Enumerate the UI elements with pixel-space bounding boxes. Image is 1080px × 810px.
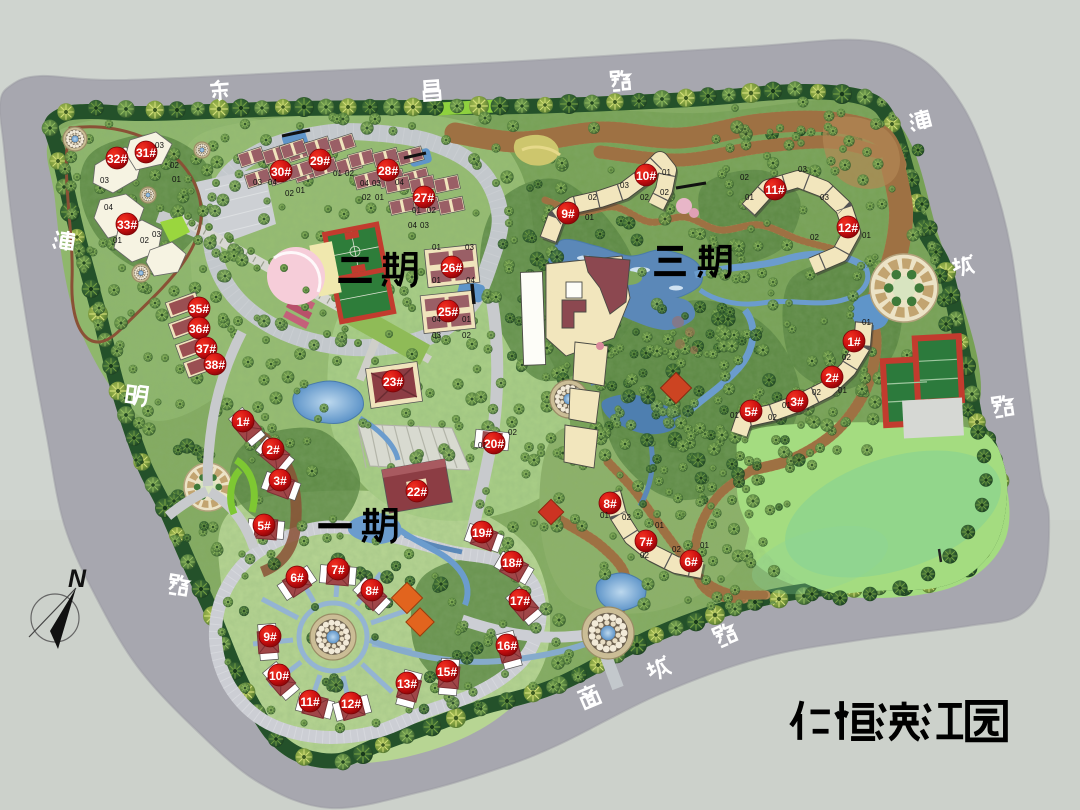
svg-text:04: 04 — [408, 221, 417, 230]
svg-text:33#: 33# — [117, 218, 137, 232]
svg-text:10#: 10# — [269, 669, 289, 683]
svg-text:1#: 1# — [236, 415, 250, 429]
svg-text:12#: 12# — [341, 697, 361, 711]
svg-text:8#: 8# — [365, 584, 379, 598]
svg-text:04: 04 — [104, 203, 113, 212]
svg-text:25#: 25# — [438, 305, 458, 319]
svg-text:7#: 7# — [639, 535, 653, 549]
svg-text:03: 03 — [420, 221, 429, 230]
svg-text:01: 01 — [745, 193, 754, 202]
svg-text:02: 02 — [140, 236, 149, 245]
svg-text:02: 02 — [285, 189, 294, 198]
svg-text:01: 01 — [432, 243, 441, 252]
svg-text:9#: 9# — [561, 207, 575, 221]
svg-text:2#: 2# — [825, 371, 839, 385]
svg-text:7#: 7# — [331, 563, 345, 577]
svg-text:30#: 30# — [271, 165, 291, 179]
svg-text:04: 04 — [395, 178, 404, 187]
svg-text:01: 01 — [862, 231, 871, 240]
svg-text:11#: 11# — [765, 183, 785, 197]
svg-text:19#: 19# — [472, 526, 492, 540]
svg-text:03: 03 — [432, 331, 441, 340]
svg-text:01: 01 — [585, 213, 594, 222]
svg-text:01: 01 — [662, 168, 671, 177]
svg-text:01: 01 — [700, 541, 709, 550]
svg-text:02: 02 — [640, 193, 649, 202]
svg-text:17#: 17# — [510, 594, 530, 608]
svg-text:03: 03 — [372, 179, 381, 188]
svg-text:01: 01 — [600, 511, 609, 520]
svg-text:02: 02 — [345, 169, 354, 178]
svg-text:13#: 13# — [397, 677, 417, 691]
svg-text:3#: 3# — [273, 474, 287, 488]
svg-text:01: 01 — [782, 401, 791, 410]
svg-text:20#: 20# — [484, 437, 504, 451]
svg-text:5#: 5# — [744, 405, 758, 419]
svg-text:01: 01 — [838, 386, 847, 395]
svg-text:26#: 26# — [442, 261, 462, 275]
svg-text:03: 03 — [155, 141, 164, 150]
svg-text:11#: 11# — [300, 695, 320, 709]
svg-text:01: 01 — [113, 236, 122, 245]
svg-text:5#: 5# — [257, 519, 271, 533]
svg-text:03: 03 — [100, 176, 109, 185]
svg-text:01: 01 — [172, 175, 181, 184]
svg-text:02: 02 — [768, 413, 777, 422]
svg-text:32#: 32# — [107, 152, 127, 166]
svg-text:01: 01 — [333, 169, 342, 178]
svg-text:02: 02 — [170, 161, 179, 170]
svg-text:8#: 8# — [603, 497, 617, 511]
svg-text:03: 03 — [152, 230, 161, 239]
svg-text:02: 02 — [362, 193, 371, 202]
svg-text:6#: 6# — [290, 571, 304, 585]
svg-text:02: 02 — [462, 331, 471, 340]
svg-text:15#: 15# — [437, 665, 457, 679]
svg-text:16#: 16# — [497, 639, 517, 653]
svg-text:01: 01 — [375, 193, 384, 202]
svg-text:01: 01 — [462, 315, 471, 324]
svg-text:03: 03 — [253, 178, 262, 187]
svg-text:18#: 18# — [502, 556, 522, 570]
svg-text:01: 01 — [730, 411, 739, 420]
svg-text:N: N — [68, 565, 87, 593]
svg-text:02: 02 — [810, 233, 819, 242]
svg-text:04: 04 — [466, 276, 475, 285]
svg-text:01: 01 — [862, 318, 871, 327]
svg-text:02: 02 — [672, 545, 681, 554]
svg-text:2#: 2# — [266, 443, 280, 457]
svg-text:01: 01 — [478, 441, 487, 450]
svg-text:9#: 9# — [263, 630, 277, 644]
svg-text:03: 03 — [798, 165, 807, 174]
svg-text:03: 03 — [820, 193, 829, 202]
svg-text:35#: 35# — [189, 302, 209, 316]
svg-text:31#: 31# — [136, 146, 156, 160]
svg-text:12#: 12# — [838, 221, 858, 235]
svg-text:28#: 28# — [378, 164, 398, 178]
svg-text:02: 02 — [427, 206, 436, 215]
svg-text:03: 03 — [465, 243, 474, 252]
svg-text:02: 02 — [508, 428, 517, 437]
svg-text:10#: 10# — [636, 169, 656, 183]
svg-text:02: 02 — [588, 193, 597, 202]
svg-text:36#: 36# — [189, 322, 209, 336]
svg-text:04: 04 — [432, 315, 441, 324]
svg-text:01: 01 — [412, 206, 421, 215]
svg-text:22#: 22# — [407, 485, 427, 499]
svg-text:02: 02 — [812, 388, 821, 397]
svg-text:03: 03 — [620, 181, 629, 190]
svg-text:02: 02 — [622, 513, 631, 522]
svg-text:01: 01 — [432, 276, 441, 285]
svg-text:38#: 38# — [205, 358, 225, 372]
svg-text:04: 04 — [268, 178, 277, 187]
svg-text:23#: 23# — [383, 375, 403, 389]
svg-text:01: 01 — [655, 521, 664, 530]
svg-text:02: 02 — [740, 173, 749, 182]
svg-text:02: 02 — [640, 551, 649, 560]
svg-text:02: 02 — [660, 188, 669, 197]
svg-text:02: 02 — [842, 353, 851, 362]
svg-text:04: 04 — [360, 179, 369, 188]
svg-text:3#: 3# — [790, 395, 804, 409]
svg-text:29#: 29# — [310, 154, 330, 168]
svg-text:6#: 6# — [684, 555, 698, 569]
svg-text:27#: 27# — [414, 191, 434, 205]
svg-text:1#: 1# — [847, 335, 861, 349]
svg-text:01: 01 — [296, 186, 305, 195]
